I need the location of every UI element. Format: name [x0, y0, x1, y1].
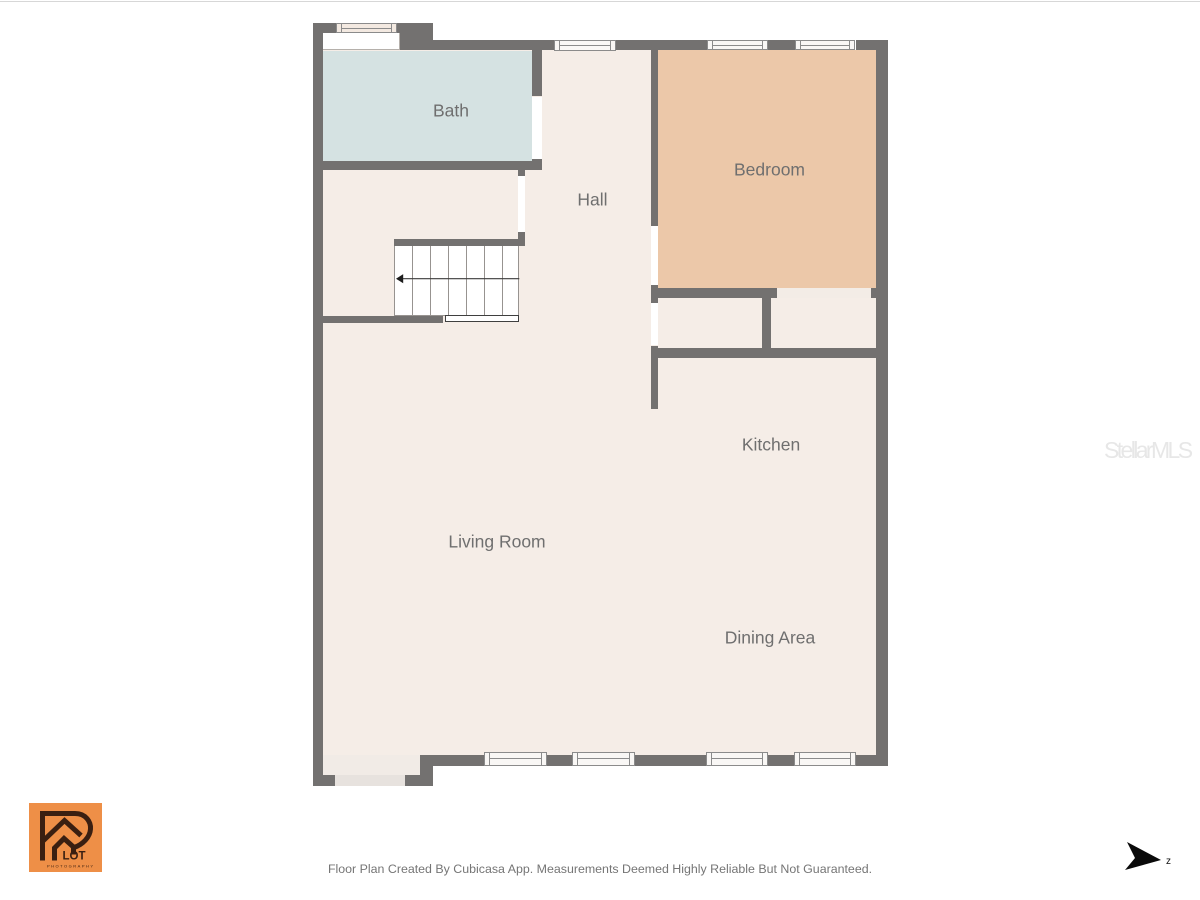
svg-text:z: z	[1166, 856, 1171, 867]
svg-text:LOT: LOT	[63, 851, 86, 863]
